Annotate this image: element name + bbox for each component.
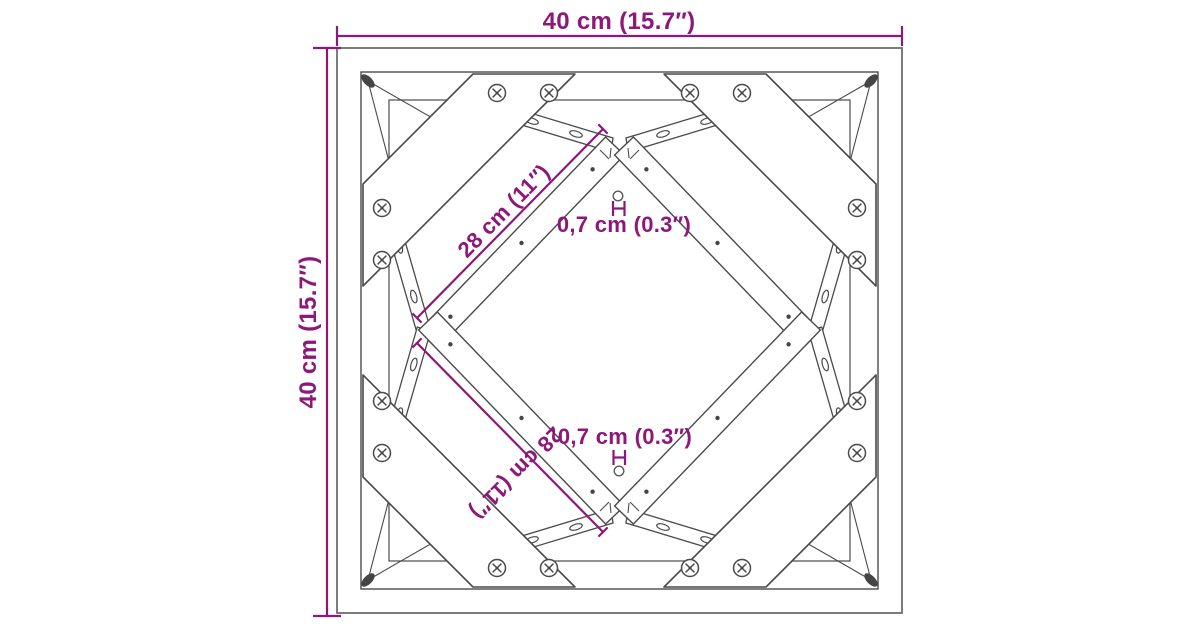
depth-dimension-label: 40 cm (15.7″) [295, 256, 322, 409]
pilot-hole-upper-icon [613, 191, 623, 201]
frame-diagram-svg: 40 cm (15.7″) 40 cm (15.7″) 28 cm (11″) … [0, 0, 1200, 630]
hole-lower-dimension-label: 0,7 cm (0.3″) [558, 424, 692, 449]
frame-structure [337, 48, 902, 613]
product-dimension-diagram: 40 cm (15.7″) 40 cm (15.7″) 28 cm (11″) … [0, 0, 1200, 630]
hole-upper-dimension-label: 0,7 cm (0.3″) [557, 212, 691, 237]
width-dimension-label: 40 cm (15.7″) [543, 8, 696, 35]
pilot-hole-lower-icon [614, 466, 624, 476]
